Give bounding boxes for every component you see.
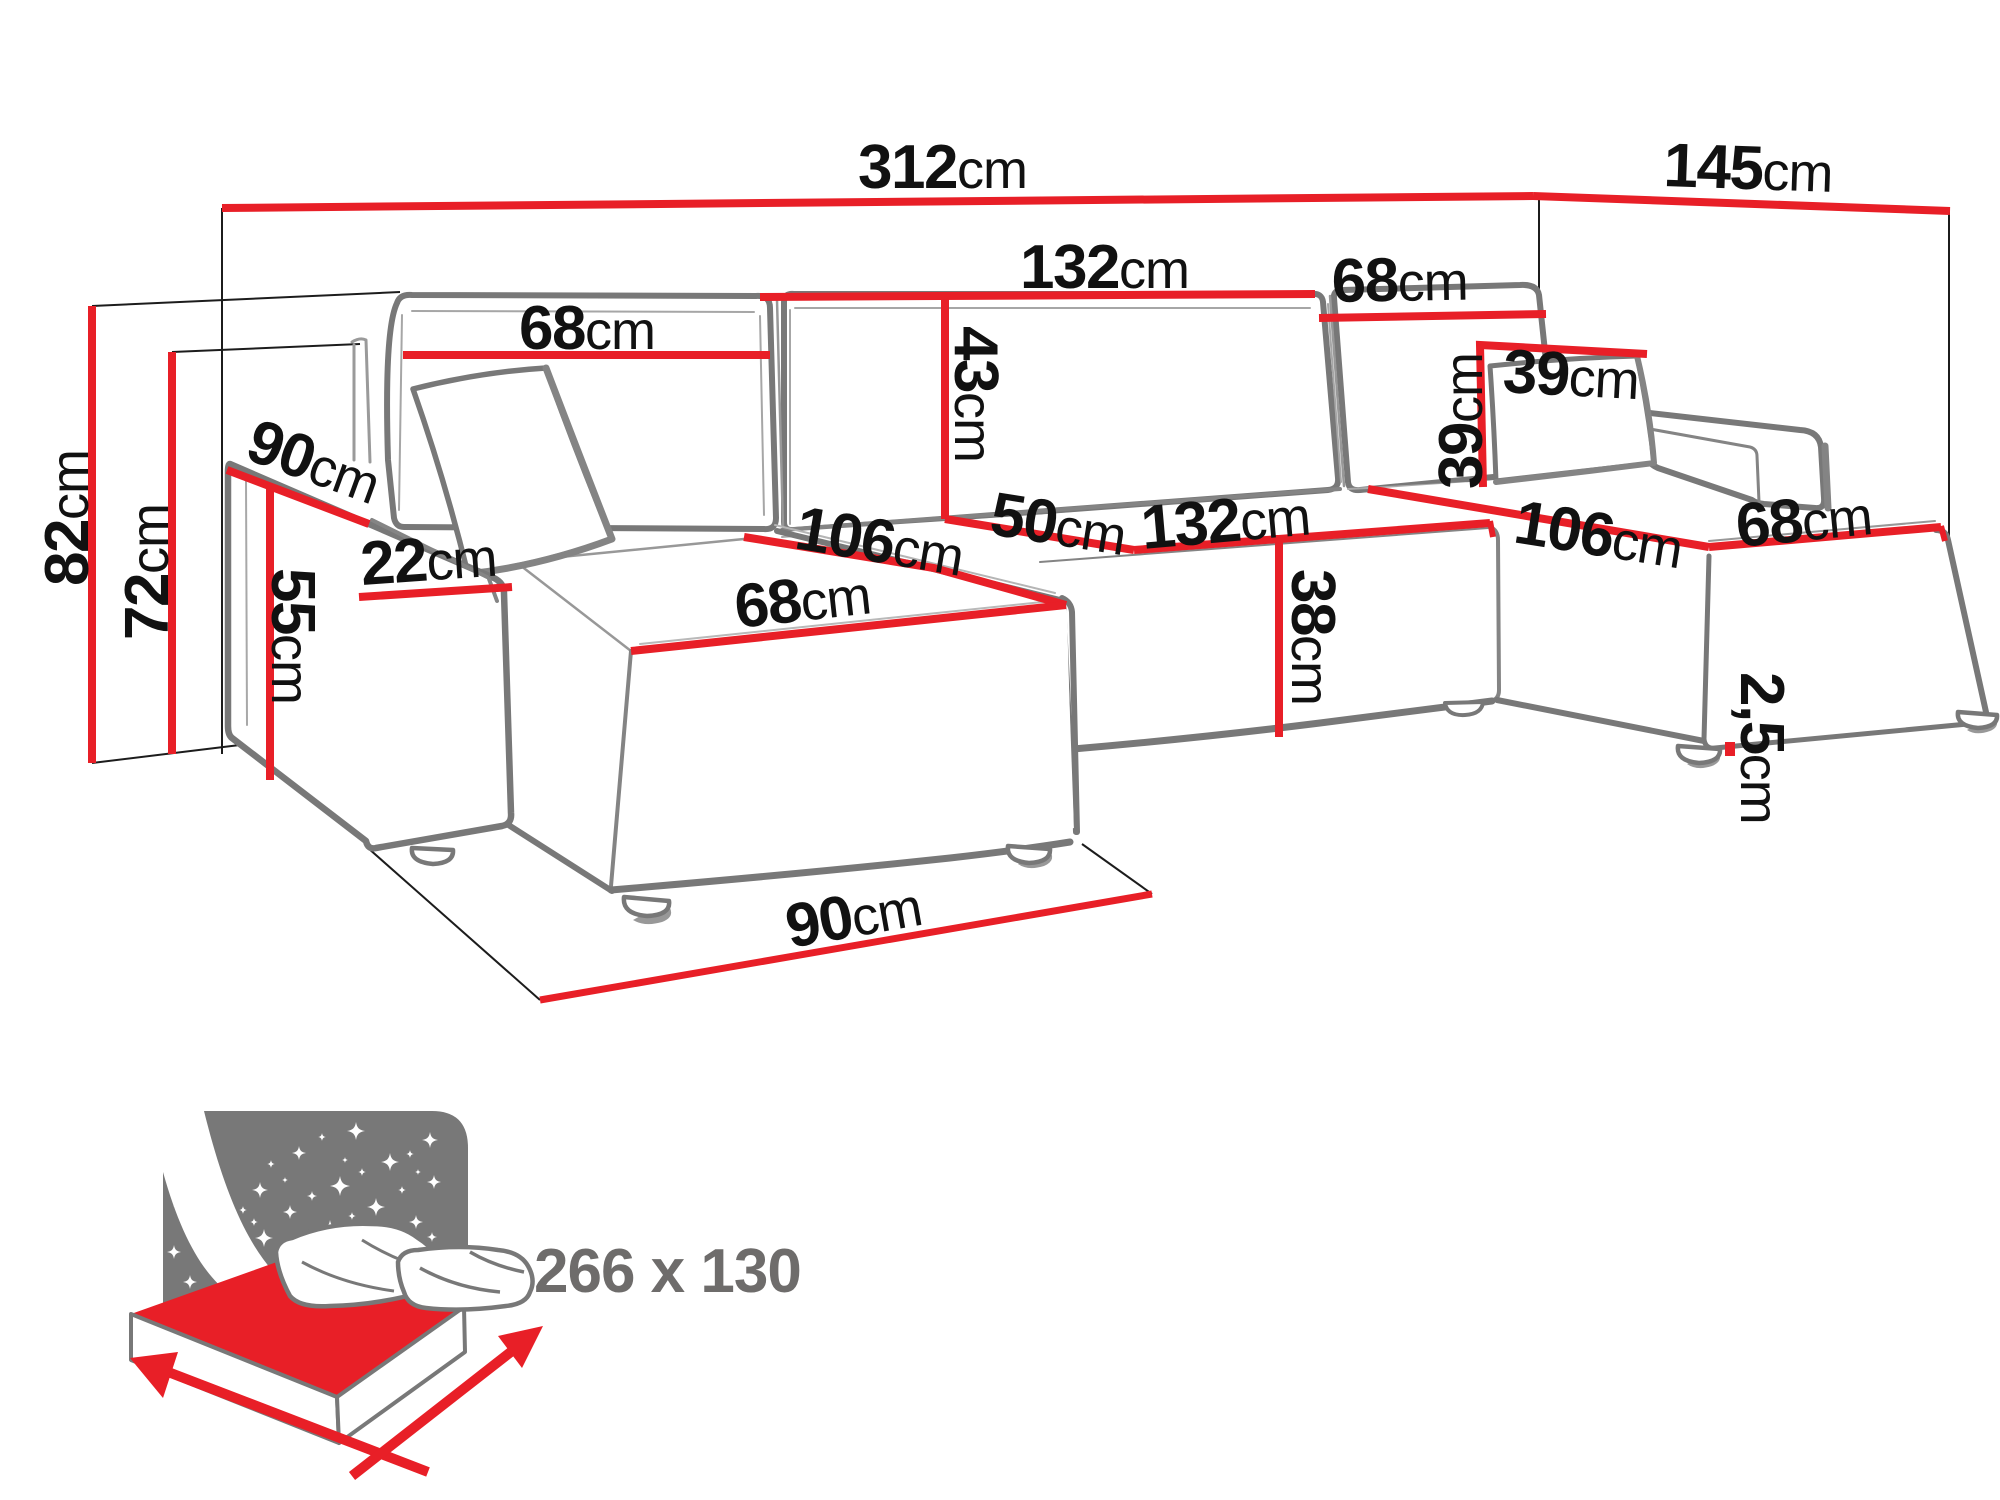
svg-text:43cm: 43cm	[941, 326, 1010, 462]
svg-text:68cm: 68cm	[1331, 245, 1468, 316]
svg-text:82cm: 82cm	[33, 450, 102, 586]
svg-text:2,5cm: 2,5cm	[1727, 672, 1796, 824]
svg-text:55cm: 55cm	[258, 568, 327, 704]
svg-text:145cm: 145cm	[1663, 131, 1834, 206]
svg-text:38cm: 38cm	[1278, 569, 1347, 705]
svg-text:266 x 130: 266 x 130	[534, 1237, 801, 1306]
svg-text:132cm: 132cm	[1020, 233, 1189, 302]
svg-text:312cm: 312cm	[858, 133, 1027, 202]
svg-text:72cm: 72cm	[113, 504, 182, 640]
svg-text:39cm: 39cm	[1427, 353, 1496, 489]
svg-text:68cm: 68cm	[519, 294, 655, 363]
svg-text:22cm: 22cm	[358, 521, 498, 599]
